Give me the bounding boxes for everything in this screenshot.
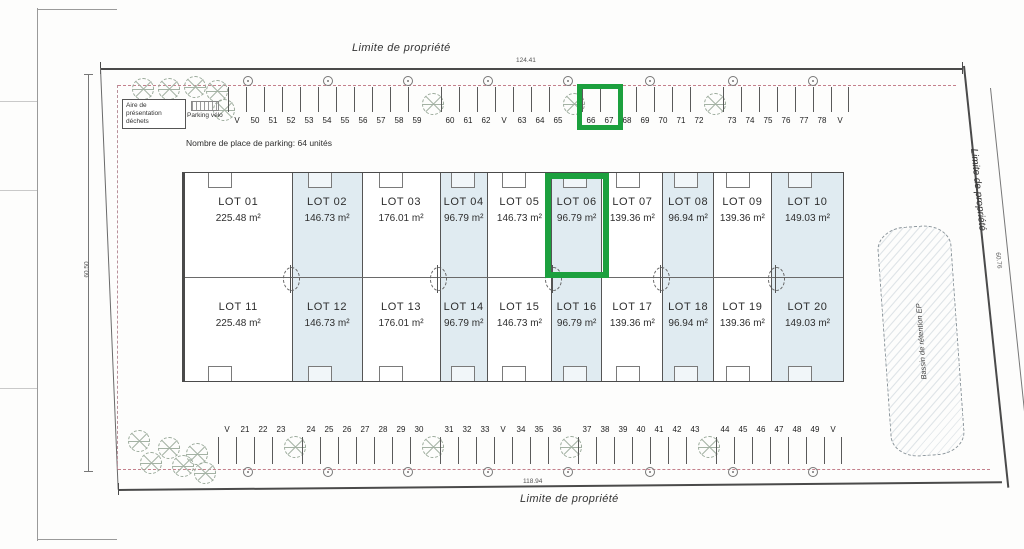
- bike-rack-icon: [191, 101, 219, 111]
- stall-divider-line: [320, 437, 321, 464]
- boundary-line-bottom: [118, 481, 1002, 490]
- parking-space-number: 48: [788, 425, 806, 434]
- lot-cell: LOT 20 149.03 m²: [772, 278, 843, 382]
- door-rect: [616, 366, 640, 381]
- lot-cell: LOT 13 176.01 m²: [363, 278, 441, 382]
- stall-divider-line: [440, 437, 441, 464]
- lot-name: LOT 13: [381, 301, 421, 313]
- parking-row-bottom: V 21 22 23 24: [218, 424, 842, 465]
- parking-space-number: 33: [476, 425, 494, 434]
- parking-space-number: 44: [716, 425, 734, 434]
- stall-divider-line: [300, 87, 301, 112]
- parking-space-number: 62: [477, 116, 495, 125]
- stall-divider-line: [549, 87, 550, 112]
- parking-space-number: 59: [408, 116, 426, 125]
- lot-cell: LOT 03 176.01 m²: [363, 173, 441, 277]
- boundary-label-right: Limite de propriété: [968, 148, 988, 232]
- parking-space: 24: [302, 424, 320, 465]
- lots-row-2: LOT 11 225.48 m² LOT 12 146.73 m² LOT 13…: [185, 278, 843, 382]
- street-lamp-icon: [563, 76, 573, 86]
- parking-space-number: 38: [596, 425, 614, 434]
- stall-divider-line: [723, 87, 724, 112]
- parking-space: V: [831, 87, 849, 127]
- parking-space: 78: [813, 87, 831, 127]
- lot-name: LOT 14: [444, 301, 484, 313]
- stall-divider-line: [459, 87, 460, 112]
- parking-count-note: Nombre de place de parking: 64 unités: [186, 138, 332, 148]
- site-plan: Limite de propriété 124.41 60.50 Limite …: [0, 0, 1024, 549]
- setback-dashed-line-top: [118, 85, 956, 86]
- parking-space-number: 64: [531, 116, 549, 125]
- parking-space: 64: [531, 87, 549, 127]
- parking-space: 22: [254, 424, 272, 465]
- parking-space: 52: [282, 87, 300, 127]
- boundary-label-bottom: Limite de propriété: [520, 493, 619, 505]
- door-rect: [788, 366, 812, 381]
- door-rect: [674, 366, 698, 381]
- parking-space-number: V: [228, 116, 246, 125]
- stall-divider-line: [302, 437, 303, 464]
- lot-name: LOT 17: [612, 301, 652, 313]
- parking-space: 69: [636, 87, 654, 127]
- parking-space-number: 47: [770, 425, 788, 434]
- parking-space-number: 78: [813, 116, 831, 125]
- parking-space-number: 30: [410, 425, 428, 434]
- dimension-right: 60.76: [994, 252, 1003, 269]
- street-lamp-icon: [645, 76, 655, 86]
- parking-space: [426, 87, 441, 127]
- parking-space: 55: [336, 87, 354, 127]
- lot-cell: LOT 02 146.73 m²: [293, 173, 363, 277]
- parking-space-number: 41: [650, 425, 668, 434]
- stall-divider-line: [477, 87, 478, 112]
- parking-space: 49: [806, 424, 824, 465]
- parking-space: 42: [668, 424, 686, 465]
- lot-area: 176.01 m²: [379, 318, 424, 329]
- parking-space-number: 28: [374, 425, 392, 434]
- stall-divider-line: [795, 87, 796, 112]
- street-lamp-icon: [808, 76, 818, 86]
- curb-line: [0, 101, 37, 102]
- dimension-line-right: [990, 88, 1024, 478]
- lot-area: 146.73 m²: [305, 213, 350, 224]
- parking-space: 38: [596, 424, 614, 465]
- parking-space-number: 69: [636, 116, 654, 125]
- parking-space: 28: [374, 424, 392, 465]
- stall-divider-line: [806, 437, 807, 464]
- tree-icon: [128, 430, 150, 452]
- stall-divider-line: [408, 87, 409, 112]
- lot-name: LOT 02: [307, 196, 347, 208]
- tree-icon: [194, 462, 216, 484]
- parking-space-number: V: [494, 425, 512, 434]
- stall-divider-line: [356, 437, 357, 464]
- parking-space-number: 58: [390, 116, 408, 125]
- stall-divider-line: [690, 87, 691, 112]
- lot-area: 96.79 m²: [557, 318, 596, 329]
- lot-area: 146.73 m²: [497, 213, 542, 224]
- parking-space-number: V: [218, 425, 236, 434]
- parking-space: 46: [752, 424, 770, 465]
- parking-space-number: 73: [723, 116, 741, 125]
- dashed-circle-symbol: [430, 267, 447, 291]
- door-rect: [208, 366, 232, 381]
- street-lamp-icon: [403, 76, 413, 86]
- parking-space-number: 71: [672, 116, 690, 125]
- parking-space: 41: [650, 424, 668, 465]
- parking-space: 51: [264, 87, 282, 127]
- building-outline: LOT 01 225.48 m² LOT 02 146.73 m² LOT 03…: [182, 172, 844, 382]
- street-lamp-icon: [323, 76, 333, 86]
- parking-space-number: 29: [392, 425, 410, 434]
- parking-space-number: 75: [759, 116, 777, 125]
- lot-cell: LOT 10 149.03 m²: [772, 173, 843, 277]
- lot-area: 96.94 m²: [668, 213, 707, 224]
- dimension-top: 124.41: [516, 57, 536, 64]
- parking-space-number: 46: [752, 425, 770, 434]
- tree-icon: [158, 78, 180, 100]
- door-rect: [726, 366, 750, 381]
- parking-space: 54: [318, 87, 336, 127]
- retention-basin-label: Bassin de rétention EP: [914, 303, 928, 380]
- stall-divider-line: [824, 437, 825, 464]
- lot-cell: LOT 01 225.48 m²: [185, 173, 293, 277]
- parking-space-number: 51: [264, 116, 282, 125]
- parking-space: 63: [513, 87, 531, 127]
- parking-space: 53: [300, 87, 318, 127]
- stall-divider-line: [336, 87, 337, 112]
- stall-divider-line: [410, 437, 411, 464]
- parking-space-number: 22: [254, 425, 272, 434]
- stall-divider-line: [513, 87, 514, 112]
- stall-divider-line: [734, 437, 735, 464]
- lot-cell: LOT 18 96.94 m²: [663, 278, 713, 382]
- parking-space-number: 54: [318, 116, 336, 125]
- parking-space-number: 49: [806, 425, 824, 434]
- parking-space-number: 55: [336, 116, 354, 125]
- door-rect: [502, 173, 526, 188]
- parking-space-number: 34: [512, 425, 530, 434]
- door-rect: [451, 366, 475, 381]
- street-lamp-icon: [728, 467, 738, 477]
- parking-space-number: 31: [440, 425, 458, 434]
- stall-divider-line: [354, 87, 355, 112]
- stall-divider-line: [374, 437, 375, 464]
- parking-space: 33: [476, 424, 494, 465]
- parking-space-number: 53: [300, 116, 318, 125]
- parking-space: [566, 424, 578, 465]
- parking-space: [704, 424, 716, 465]
- parking-space-number: 65: [549, 116, 567, 125]
- parking-space-number: 60: [441, 116, 459, 125]
- parking-space-number: 72: [690, 116, 708, 125]
- lot-area: 176.01 m²: [379, 213, 424, 224]
- waste-area-box: Aire de présentation déchets: [122, 99, 186, 129]
- lot-area: 139.36 m²: [720, 318, 765, 329]
- stall-divider-line: [458, 437, 459, 464]
- parking-space-number: 61: [459, 116, 477, 125]
- curb-line: [0, 190, 37, 191]
- parking-space-number: V: [495, 116, 513, 125]
- curb-line: [0, 388, 37, 389]
- stall-divider-line: [236, 437, 237, 464]
- stall-divider-line: [441, 87, 442, 112]
- door-rect: [674, 173, 698, 188]
- parking-space: V: [228, 87, 246, 127]
- parking-space: 61: [459, 87, 477, 127]
- parking-space-number: 74: [741, 116, 759, 125]
- lot-name: LOT 04: [444, 196, 484, 208]
- stall-divider-line: [759, 87, 760, 112]
- lot-name: LOT 12: [307, 301, 347, 313]
- stall-divider-line: [372, 87, 373, 112]
- stall-divider-line: [338, 437, 339, 464]
- parking-space-number: 39: [614, 425, 632, 434]
- parking-space: 50: [246, 87, 264, 127]
- lot-area: 149.03 m²: [785, 318, 830, 329]
- street-lamp-icon: [323, 467, 333, 477]
- stall-divider-line: [495, 87, 496, 112]
- parking-space: 34: [512, 424, 530, 465]
- parking-space: 57: [372, 87, 390, 127]
- street-lamp-icon: [728, 76, 738, 86]
- lot-name: LOT 20: [787, 301, 827, 313]
- boundary-label-top: Limite de propriété: [352, 42, 451, 54]
- parking-space: V: [218, 424, 236, 465]
- street-lamp-icon: [483, 467, 493, 477]
- road-corner-line-bottom: [37, 539, 117, 540]
- lot-area: 139.36 m²: [610, 318, 655, 329]
- parking-space-number: 52: [282, 116, 300, 125]
- lot-cell: LOT 17 139.36 m²: [602, 278, 663, 382]
- parking-space: 60: [441, 87, 459, 127]
- stall-divider-line: [813, 87, 814, 112]
- lot-name: LOT 07: [612, 196, 652, 208]
- door-rect: [563, 366, 587, 381]
- lot-area: 139.36 m²: [610, 213, 655, 224]
- tree-icon: [132, 78, 154, 100]
- parking-space: [428, 424, 440, 465]
- lot-cell: LOT 11 225.48 m²: [185, 278, 293, 382]
- parking-space: 75: [759, 87, 777, 127]
- parking-space: V: [495, 87, 513, 127]
- parking-space: 76: [777, 87, 795, 127]
- parking-space: 35: [530, 424, 548, 465]
- lot-cell: LOT 16 96.79 m²: [552, 278, 602, 382]
- parking-space: 47: [770, 424, 788, 465]
- dashed-circle-symbol: [283, 267, 300, 291]
- stall-divider-line: [531, 87, 532, 112]
- parking-space-number: 50: [246, 116, 264, 125]
- parking-space-number: 23: [272, 425, 290, 434]
- door-rect: [308, 173, 332, 188]
- lot-area: 139.36 m²: [720, 213, 765, 224]
- parking-space: 56: [354, 87, 372, 127]
- stall-divider-line: [614, 437, 615, 464]
- stall-divider-line: [654, 87, 655, 112]
- road-corner-line: [37, 9, 117, 10]
- parking-space: 71: [672, 87, 690, 127]
- parking-space-number: 32: [458, 425, 476, 434]
- stall-divider-line: [318, 87, 319, 112]
- parking-space-number: 37: [578, 425, 596, 434]
- parking-space-number: 25: [320, 425, 338, 434]
- boundary-line-right: [963, 66, 1009, 488]
- lot-cell: LOT 08 96.94 m²: [663, 173, 713, 277]
- parking-space: 70: [654, 87, 672, 127]
- parking-space: 48: [788, 424, 806, 465]
- parking-space: 58: [390, 87, 408, 127]
- tree-icon: [172, 455, 194, 477]
- dimension-bottom: 118.94: [523, 478, 542, 485]
- street-lamp-icon: [808, 467, 818, 477]
- parking-space-number: 56: [354, 116, 372, 125]
- lot-area: 225.48 m²: [216, 213, 261, 224]
- stall-divider-line: [246, 87, 247, 112]
- parking-space-number: 77: [795, 116, 813, 125]
- stall-divider-line: [254, 437, 255, 464]
- parking-space: 21: [236, 424, 254, 465]
- parking-space: 77: [795, 87, 813, 127]
- parking-space-number: 70: [654, 116, 672, 125]
- lot-area: 146.73 m²: [305, 318, 350, 329]
- parking-space: 32: [458, 424, 476, 465]
- parking-space-number: 24: [302, 425, 320, 434]
- door-rect: [451, 173, 475, 188]
- dashed-circle-symbol: [653, 267, 670, 291]
- stall-divider-line: [578, 437, 579, 464]
- stall-divider-line: [672, 87, 673, 112]
- lot-name: LOT 18: [668, 301, 708, 313]
- lot-name: LOT 16: [557, 301, 597, 313]
- lot-name: LOT 15: [499, 301, 539, 313]
- lots-row-1: LOT 01 225.48 m² LOT 02 146.73 m² LOT 03…: [185, 173, 843, 278]
- street-lamp-icon: [645, 467, 655, 477]
- stall-divider-line: [686, 437, 687, 464]
- parking-space: 37: [578, 424, 596, 465]
- lot-name: LOT 09: [722, 196, 762, 208]
- lot-cell: LOT 07 139.36 m²: [602, 173, 663, 277]
- parking-space: 27: [356, 424, 374, 465]
- boundary-line-top: [100, 68, 963, 70]
- stall-divider-line: [716, 437, 717, 464]
- parking-space-number: V: [824, 425, 842, 434]
- parking-space-number: 21: [236, 425, 254, 434]
- parking-space: V: [494, 424, 512, 465]
- parking-space: 44: [716, 424, 734, 465]
- stall-divider-line: [530, 437, 531, 464]
- parking-space: 29: [392, 424, 410, 465]
- street-lamp-icon: [243, 76, 253, 86]
- lot-cell: LOT 05 146.73 m²: [488, 173, 552, 277]
- parking-space-number: V: [831, 116, 849, 125]
- lot-area: 225.48 m²: [216, 318, 261, 329]
- dim-tick: [84, 74, 93, 75]
- stall-divider-line: [770, 437, 771, 464]
- stall-divider-line: [777, 87, 778, 112]
- door-rect: [379, 366, 403, 381]
- lot-name: LOT 10: [787, 196, 827, 208]
- parking-space-number: 27: [356, 425, 374, 434]
- parking-space-number: 40: [632, 425, 650, 434]
- parking-space-number: 43: [686, 425, 704, 434]
- parking-space-number: 35: [530, 425, 548, 434]
- stall-divider-line: [512, 437, 513, 464]
- door-rect: [616, 173, 640, 188]
- stall-divider-line: [788, 437, 789, 464]
- parking-space: [290, 424, 302, 465]
- lot-cell: LOT 19 139.36 m²: [714, 278, 772, 382]
- door-rect: [208, 173, 232, 188]
- stall-divider-line: [272, 437, 273, 464]
- door-rect: [502, 366, 526, 381]
- lot-cell: LOT 14 96.79 m²: [441, 278, 488, 382]
- parking-space-number: 36: [548, 425, 566, 434]
- stall-divider-line: [596, 437, 597, 464]
- lot-name: LOT 11: [219, 301, 258, 313]
- lot-cell: LOT 09 139.36 m²: [714, 173, 772, 277]
- parking-space-number: 76: [777, 116, 795, 125]
- dim-tick: [118, 483, 119, 495]
- stall-divider-line: [392, 437, 393, 464]
- dim-tick: [84, 471, 93, 472]
- door-rect: [726, 173, 750, 188]
- stall-divider-line: [282, 87, 283, 112]
- parking-space-number: 45: [734, 425, 752, 434]
- lot-area: 96.79 m²: [444, 213, 483, 224]
- stall-divider-line: [548, 437, 549, 464]
- tree-icon: [140, 452, 162, 474]
- parking-space-number: 26: [338, 425, 356, 434]
- dashed-circle-symbol: [768, 267, 785, 291]
- retention-basin: Bassin de rétention EP: [876, 224, 966, 459]
- stall-divider-line: [218, 437, 219, 464]
- street-lamp-icon: [403, 467, 413, 477]
- stall-divider-line: [390, 87, 391, 112]
- parking-space: 31: [440, 424, 458, 465]
- lot-name: LOT 19: [722, 301, 762, 313]
- stall-divider-line: [632, 437, 633, 464]
- lot-cell: LOT 04 96.79 m²: [441, 173, 488, 277]
- highlight-parking-66-67: [577, 84, 623, 130]
- lot-name: LOT 01: [218, 196, 258, 208]
- parking-space: 39: [614, 424, 632, 465]
- stall-divider-line: [636, 87, 637, 112]
- parking-space: V: [824, 424, 842, 465]
- parking-space: 62: [477, 87, 495, 127]
- street-lamp-icon: [483, 76, 493, 86]
- parking-space: 25: [320, 424, 338, 465]
- parking-space-number: 63: [513, 116, 531, 125]
- parking-space: 73: [723, 87, 741, 127]
- lot-cell: LOT 15 146.73 m²: [488, 278, 552, 382]
- stall-divider-line: [831, 87, 832, 112]
- street-lamp-icon: [563, 467, 573, 477]
- parking-space: 40: [632, 424, 650, 465]
- parking-space-number: 57: [372, 116, 390, 125]
- parking-row-top: V 50 51 52 53 54: [228, 87, 849, 127]
- lot-name: LOT 05: [499, 196, 539, 208]
- parking-space: 74: [741, 87, 759, 127]
- street-lamp-icon: [243, 467, 253, 477]
- lot-area: 149.03 m²: [785, 213, 830, 224]
- stall-divider-line: [494, 437, 495, 464]
- stall-divider-line: [741, 87, 742, 112]
- road-edge-line: [37, 8, 38, 541]
- door-rect: [308, 366, 332, 381]
- lot-area: 146.73 m²: [497, 318, 542, 329]
- stall-divider-line: [668, 437, 669, 464]
